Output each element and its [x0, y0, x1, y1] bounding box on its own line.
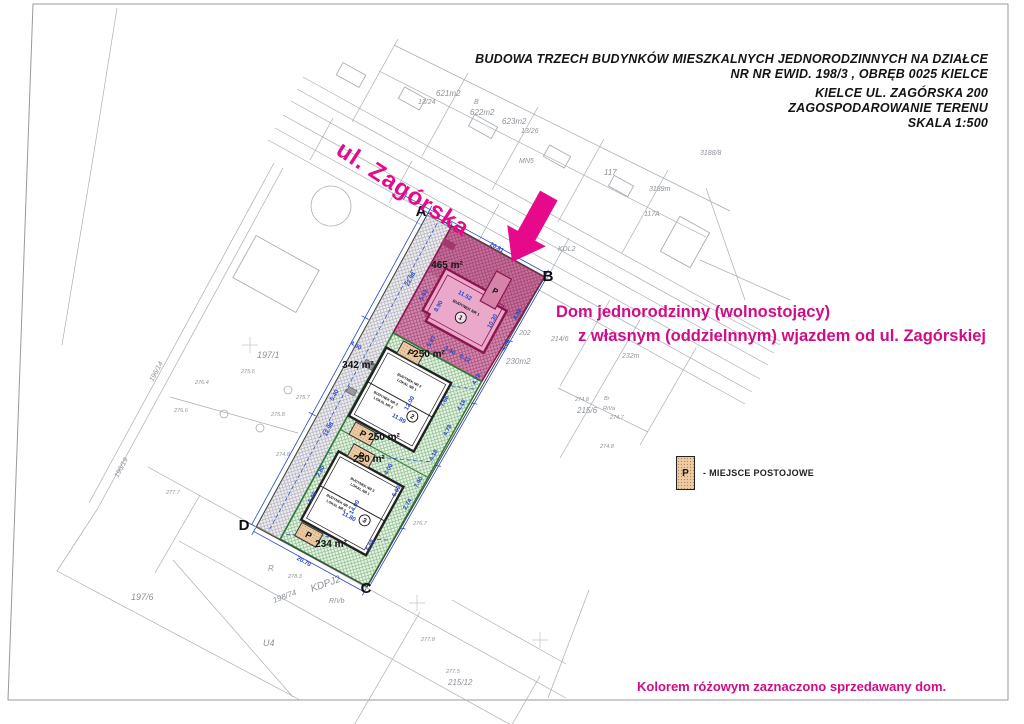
cadastral-line: [640, 348, 696, 445]
parcel-label: 196/14: [149, 361, 165, 383]
sale-annotation: Dom jednorodzinny (wolnostojący) z własn…: [556, 300, 986, 348]
title-block: BUDOWA TRZECH BUDYNKÓW MIESZKALNYCH JEDN…: [475, 52, 988, 131]
area-label: 250 m²: [368, 432, 400, 443]
parcel-label: RIVb: [329, 598, 345, 605]
neighbor-building: [233, 236, 319, 313]
title-line: KIELCE UL. ZAGÓRSKA 200: [475, 86, 988, 101]
cadastral-line: [422, 73, 468, 156]
parcel-label: 230m2: [505, 357, 531, 366]
site-plan-sheet: 621m213/24B622m2623m213/26MN51173189m117…: [0, 0, 1024, 724]
legend: P - MIEJSCE POSTOJOWE: [676, 456, 814, 490]
parcel-label: 277.5: [445, 669, 461, 675]
parcel-label: 117: [604, 168, 617, 177]
parcel-label: 13/24: [418, 99, 436, 106]
annotation-line-2: z własnym (oddzielnnym) wjazdem od ul. Z…: [556, 324, 986, 348]
cadastral-line: [548, 590, 589, 698]
dimension-tick: [252, 528, 256, 535]
title-line: BUDOWA TRZECH BUDYNKÓW MIESZKALNYCH JEDN…: [475, 52, 988, 67]
parcel-label: 276.7: [412, 521, 428, 527]
corner-letter-B: B: [543, 268, 554, 285]
parcel-label: 196/19: [114, 457, 130, 479]
parcel-label: KDPJ2: [309, 574, 342, 595]
footnote: Kolorem różowym zaznaczono sprzedawany d…: [637, 679, 946, 694]
area-label: 342 m²: [342, 360, 374, 371]
cadastral-circle: [256, 424, 264, 432]
parcel-label: 198/74: [272, 588, 299, 605]
cadastral-line: [452, 600, 566, 664]
area-label: 234 m²: [315, 539, 347, 550]
parcel-label: 275.6: [240, 369, 256, 375]
parcel-label: 197/1: [257, 350, 280, 360]
parking-symbol: P: [676, 456, 695, 490]
annotation-line-1: Dom jednorodzinny (wolnostojący): [556, 300, 986, 324]
parcel-label: 275.8: [270, 412, 286, 418]
parcel-label: 3188/8: [700, 150, 722, 157]
parcel-label: 215/6: [576, 406, 598, 415]
parcel-label: 215/12: [447, 678, 473, 687]
parcel-label: 197/6: [131, 592, 154, 602]
area-label: 250 m²: [353, 454, 385, 465]
cadastral-line: [94, 8, 117, 152]
parcel-label: 277.7: [165, 490, 181, 496]
parcel-label: 3189m: [649, 186, 671, 193]
cadastral-line: [62, 152, 94, 345]
cadastral-circle: [311, 186, 351, 226]
dimension-tick: [471, 401, 477, 406]
corner-letter-D: D: [239, 517, 250, 534]
plot-group: BUDYNEK NR 1BUDYNEK NR 2LOKAL NR 1BUDYNE…: [227, 193, 551, 601]
area-label: 465 m²: [431, 260, 463, 271]
cadastral-line: [57, 508, 98, 571]
parcel-label: 117A: [644, 211, 660, 218]
parcel-label: Br: [604, 396, 611, 402]
cadastral-circle: [284, 386, 292, 394]
parcel-label: 274.8: [599, 444, 615, 450]
dimension-label: 20.70: [295, 556, 312, 569]
dimension-tick: [309, 412, 316, 416]
cadastral-line: [155, 495, 200, 573]
cadastral-line: [173, 560, 293, 697]
parcel-label: 277.8: [420, 637, 436, 643]
cadastral-line: [700, 260, 790, 300]
parcel-label: 275.7: [295, 395, 311, 401]
dimension-tick: [362, 316, 369, 320]
parcel-label: U4: [263, 638, 275, 648]
title-line: SKALA 1:500: [475, 116, 988, 131]
area-label: 250 m²: [413, 349, 445, 360]
cadastral-circle: [220, 410, 228, 418]
title-line: ZAGOSPODAROWANIE TERENU: [475, 101, 988, 116]
parcel-label: 276.6: [173, 408, 189, 414]
parcel-label: R: [268, 564, 274, 573]
cadastral-line: [89, 163, 274, 503]
parcel-label: 621m2: [436, 89, 461, 98]
parcel-label: RIVa: [603, 406, 615, 412]
cadastral-line: [98, 168, 283, 508]
legend-label: - MIEJSCE POSTOJOWE: [703, 468, 814, 478]
cadastral-line: [350, 612, 420, 724]
title-line: NR NR EWID. 198/3 , OBRĘB 0025 KIELCE: [475, 67, 988, 82]
corner-letter-C: C: [361, 580, 372, 597]
parcel-label: 276.4: [194, 380, 209, 386]
neighbor-building: [336, 63, 366, 88]
cadastral-line: [476, 204, 499, 246]
cadastral-line: [558, 139, 604, 222]
parcel-label: 202: [518, 330, 531, 337]
cadastral-line: [706, 188, 745, 300]
cadastral-line: [352, 39, 398, 122]
parcel-label: 232m: [621, 353, 640, 360]
parcel-label: 274.8: [574, 397, 590, 403]
neighbor-building: [660, 216, 709, 267]
parcel-label: KDL2: [558, 246, 576, 253]
parcel-label: 274.7: [609, 415, 625, 421]
neighbor-building: [608, 175, 633, 196]
parcel-label: MN5: [519, 158, 534, 165]
parcel-label: 278.3: [287, 574, 303, 580]
cadastral-line: [57, 571, 300, 700]
